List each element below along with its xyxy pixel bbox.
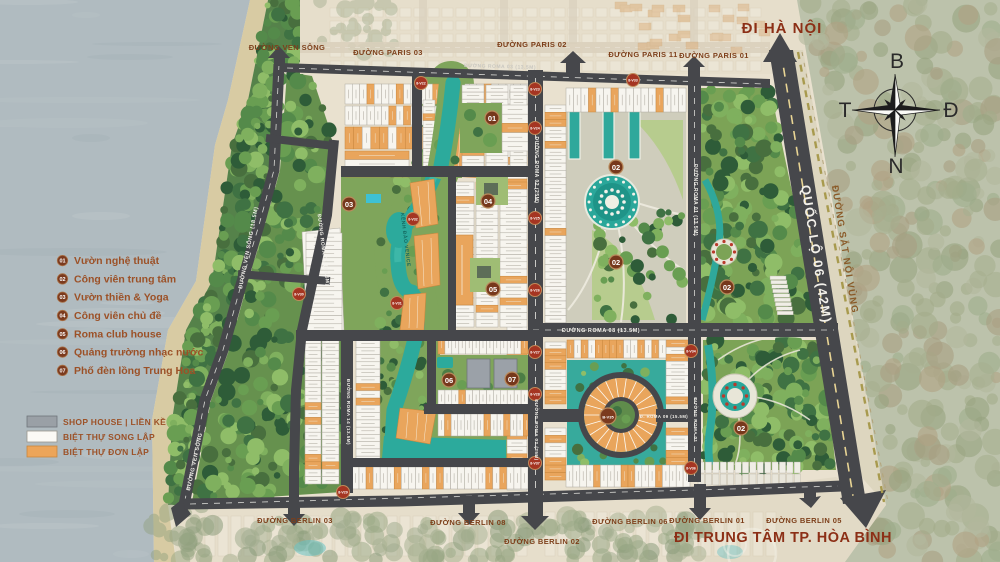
svg-text:ĐƯỜNG PARIS 03: ĐƯỜNG PARIS 03 xyxy=(353,48,423,57)
svg-text:8-V36: 8-V36 xyxy=(686,467,696,471)
svg-text:Công viên trung tâm: Công viên trung tâm xyxy=(74,273,176,285)
svg-text:8-V37: 8-V37 xyxy=(530,462,540,466)
svg-text:8-V32: 8-V32 xyxy=(408,218,418,222)
svg-text:ĐI TRUNG TÂM TP. HÒA BÌNH: ĐI TRUNG TÂM TP. HÒA BÌNH xyxy=(674,528,892,546)
svg-text:BIỆT THỰ ĐƠN LẬP: BIỆT THỰ ĐƠN LẬP xyxy=(63,446,149,457)
svg-text:Đ: Đ xyxy=(943,99,958,122)
svg-text:8-V29: 8-V29 xyxy=(338,491,348,495)
svg-text:02: 02 xyxy=(59,277,65,283)
svg-text:ĐƯỜNG PARIS 01: ĐƯỜNG PARIS 01 xyxy=(679,51,749,60)
svg-text:02: 02 xyxy=(612,258,620,267)
svg-text:ĐƯỜNG ROMA 01: ĐƯỜNG ROMA 01 xyxy=(693,397,700,442)
svg-text:8-V24: 8-V24 xyxy=(530,127,540,131)
svg-text:8-V26: 8-V26 xyxy=(530,289,540,293)
svg-text:8-V25: 8-V25 xyxy=(530,217,540,221)
svg-text:ĐƯỜNG ROMA 02 (25M): ĐƯỜNG ROMA 02 (25M) xyxy=(533,137,541,204)
svg-text:Vườn thiền & Yoga: Vườn thiền & Yoga xyxy=(74,292,169,304)
svg-text:8-V27: 8-V27 xyxy=(530,351,540,355)
svg-text:ĐƯỜNG ROMA 01 (13.5M): ĐƯỜNG ROMA 01 (13.5M) xyxy=(692,164,700,236)
svg-text:8-V22: 8-V22 xyxy=(416,82,426,86)
svg-text:ĐƯỜNG ROMA 14 (13.5M): ĐƯỜNG ROMA 14 (13.5M) xyxy=(346,379,353,445)
svg-text:ĐƯỜNG BERLIN 02: ĐƯỜNG BERLIN 02 xyxy=(504,537,580,546)
svg-text:05: 05 xyxy=(489,285,497,294)
svg-text:04: 04 xyxy=(59,314,66,320)
svg-text:Công viên chủ đề: Công viên chủ đề xyxy=(74,310,162,322)
svg-text:ĐƯỜNG BERLIN 06: ĐƯỜNG BERLIN 06 xyxy=(592,517,668,526)
svg-text:02: 02 xyxy=(612,163,620,172)
svg-text:8-V30: 8-V30 xyxy=(294,293,304,297)
svg-text:ĐƯỜNG BERLIN 08: ĐƯỜNG BERLIN 08 xyxy=(430,518,506,527)
svg-text:Đ. ROMA 09 (15.5M): Đ. ROMA 09 (15.5M) xyxy=(640,414,689,419)
svg-text:ĐƯỜNG BERLIN 01: ĐƯỜNG BERLIN 01 xyxy=(669,516,745,525)
svg-text:BIỆT THỰ SONG LẬP: BIỆT THỰ SONG LẬP xyxy=(63,431,155,442)
svg-text:N: N xyxy=(888,155,903,178)
svg-text:B: B xyxy=(890,50,904,73)
svg-text:Vườn nghệ thuật: Vườn nghệ thuật xyxy=(74,255,160,267)
svg-text:8-V33: 8-V33 xyxy=(628,79,638,83)
svg-text:04: 04 xyxy=(484,197,493,206)
svg-text:05: 05 xyxy=(59,332,65,338)
svg-text:ĐƯỜNG ROMA 08 (13.5M): ĐƯỜNG ROMA 08 (13.5M) xyxy=(562,326,640,334)
svg-text:8-V28: 8-V28 xyxy=(530,393,540,397)
svg-text:ĐƯỜNG BERLIN 05: ĐƯỜNG BERLIN 05 xyxy=(766,516,842,525)
svg-text:8-V31: 8-V31 xyxy=(392,302,402,306)
svg-text:ĐI HÀ NỘI: ĐI HÀ NỘI xyxy=(742,19,823,37)
svg-text:B-V35: B-V35 xyxy=(602,415,614,420)
svg-text:8-V23: 8-V23 xyxy=(530,88,540,92)
svg-text:8-V34: 8-V34 xyxy=(686,350,696,354)
svg-text:ĐƯỜNG BERLIN 03: ĐƯỜNG BERLIN 03 xyxy=(257,516,333,525)
svg-text:ĐƯỜNG PARIS 11: ĐƯỜNG PARIS 11 xyxy=(608,50,677,59)
svg-text:06: 06 xyxy=(59,350,65,356)
svg-text:02: 02 xyxy=(723,283,731,292)
svg-text:Roma club house: Roma club house xyxy=(74,328,162,340)
svg-text:06: 06 xyxy=(445,376,453,385)
svg-text:02: 02 xyxy=(737,424,745,433)
svg-text:SHOP HOUSE | LIỀN KỀ: SHOP HOUSE | LIỀN KỀ xyxy=(63,417,166,427)
svg-text:T: T xyxy=(839,99,852,122)
svg-text:Quảng trường nhạc nước: Quảng trường nhạc nước xyxy=(74,347,203,359)
svg-text:Phố đèn lồng Trung Hoa: Phố đèn lồng Trung Hoa xyxy=(74,365,195,377)
svg-text:ĐƯỜNG PARIS 02: ĐƯỜNG PARIS 02 xyxy=(497,40,567,49)
svg-text:07: 07 xyxy=(508,375,516,384)
svg-text:03: 03 xyxy=(345,200,353,209)
svg-text:01: 01 xyxy=(488,114,496,123)
svg-text:ĐƯỜNG VEN SÔNG: ĐƯỜNG VEN SÔNG xyxy=(249,43,326,52)
svg-text:01: 01 xyxy=(59,259,65,265)
svg-text:03: 03 xyxy=(59,295,65,301)
svg-text:07: 07 xyxy=(59,368,65,374)
svg-text:ĐƯỜNG ROMA 02 (25M): ĐƯỜNG ROMA 02 (25M) xyxy=(534,399,541,460)
